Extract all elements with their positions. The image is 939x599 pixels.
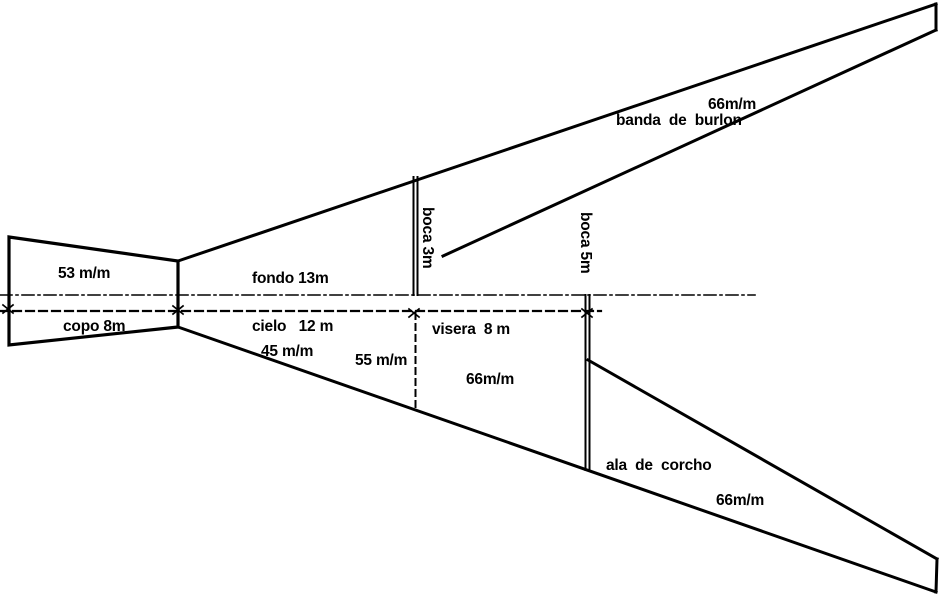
copo-mesh-label: 53 m/m (58, 265, 110, 282)
trawl-net-plan-drawing: 53 m/m copo 8m fondo 13m cielo 12 m 45 m… (0, 0, 939, 599)
fondo-length-label: fondo 13m (252, 270, 329, 287)
ala-name-label: ala de corcho (606, 457, 712, 474)
cielo-mesh-label: 45 m/m (261, 343, 313, 360)
banda-name-label: banda de burlon (616, 112, 742, 129)
diagram-lines (0, 4, 937, 592)
visera-mesh-label: 66m/m (466, 371, 514, 388)
cielo-length-label: cielo 12 m (252, 318, 333, 335)
boca-5m-label: boca 5m (577, 212, 594, 274)
cielo-visera-bottom-edge (178, 327, 936, 592)
cielo-rear-mesh-label: 55 m/m (355, 352, 407, 369)
trawl-net-plan: 53 m/m copo 8m fondo 13m cielo 12 m 45 m… (0, 0, 939, 599)
visera-length-label: visera 8 m (432, 321, 510, 338)
tick-cross-boca-3m (409, 309, 419, 317)
ala-mesh-label: 66m/m (716, 492, 764, 509)
banda-bottom-edge (443, 30, 936, 256)
fondo-banda-top-edge (178, 4, 936, 261)
ala-right-edge (936, 559, 937, 592)
banda-mesh-label: 66m/m (708, 96, 756, 113)
boca-3m-label: boca 3m (419, 207, 436, 269)
copo-length-label: copo 8m (63, 318, 125, 335)
